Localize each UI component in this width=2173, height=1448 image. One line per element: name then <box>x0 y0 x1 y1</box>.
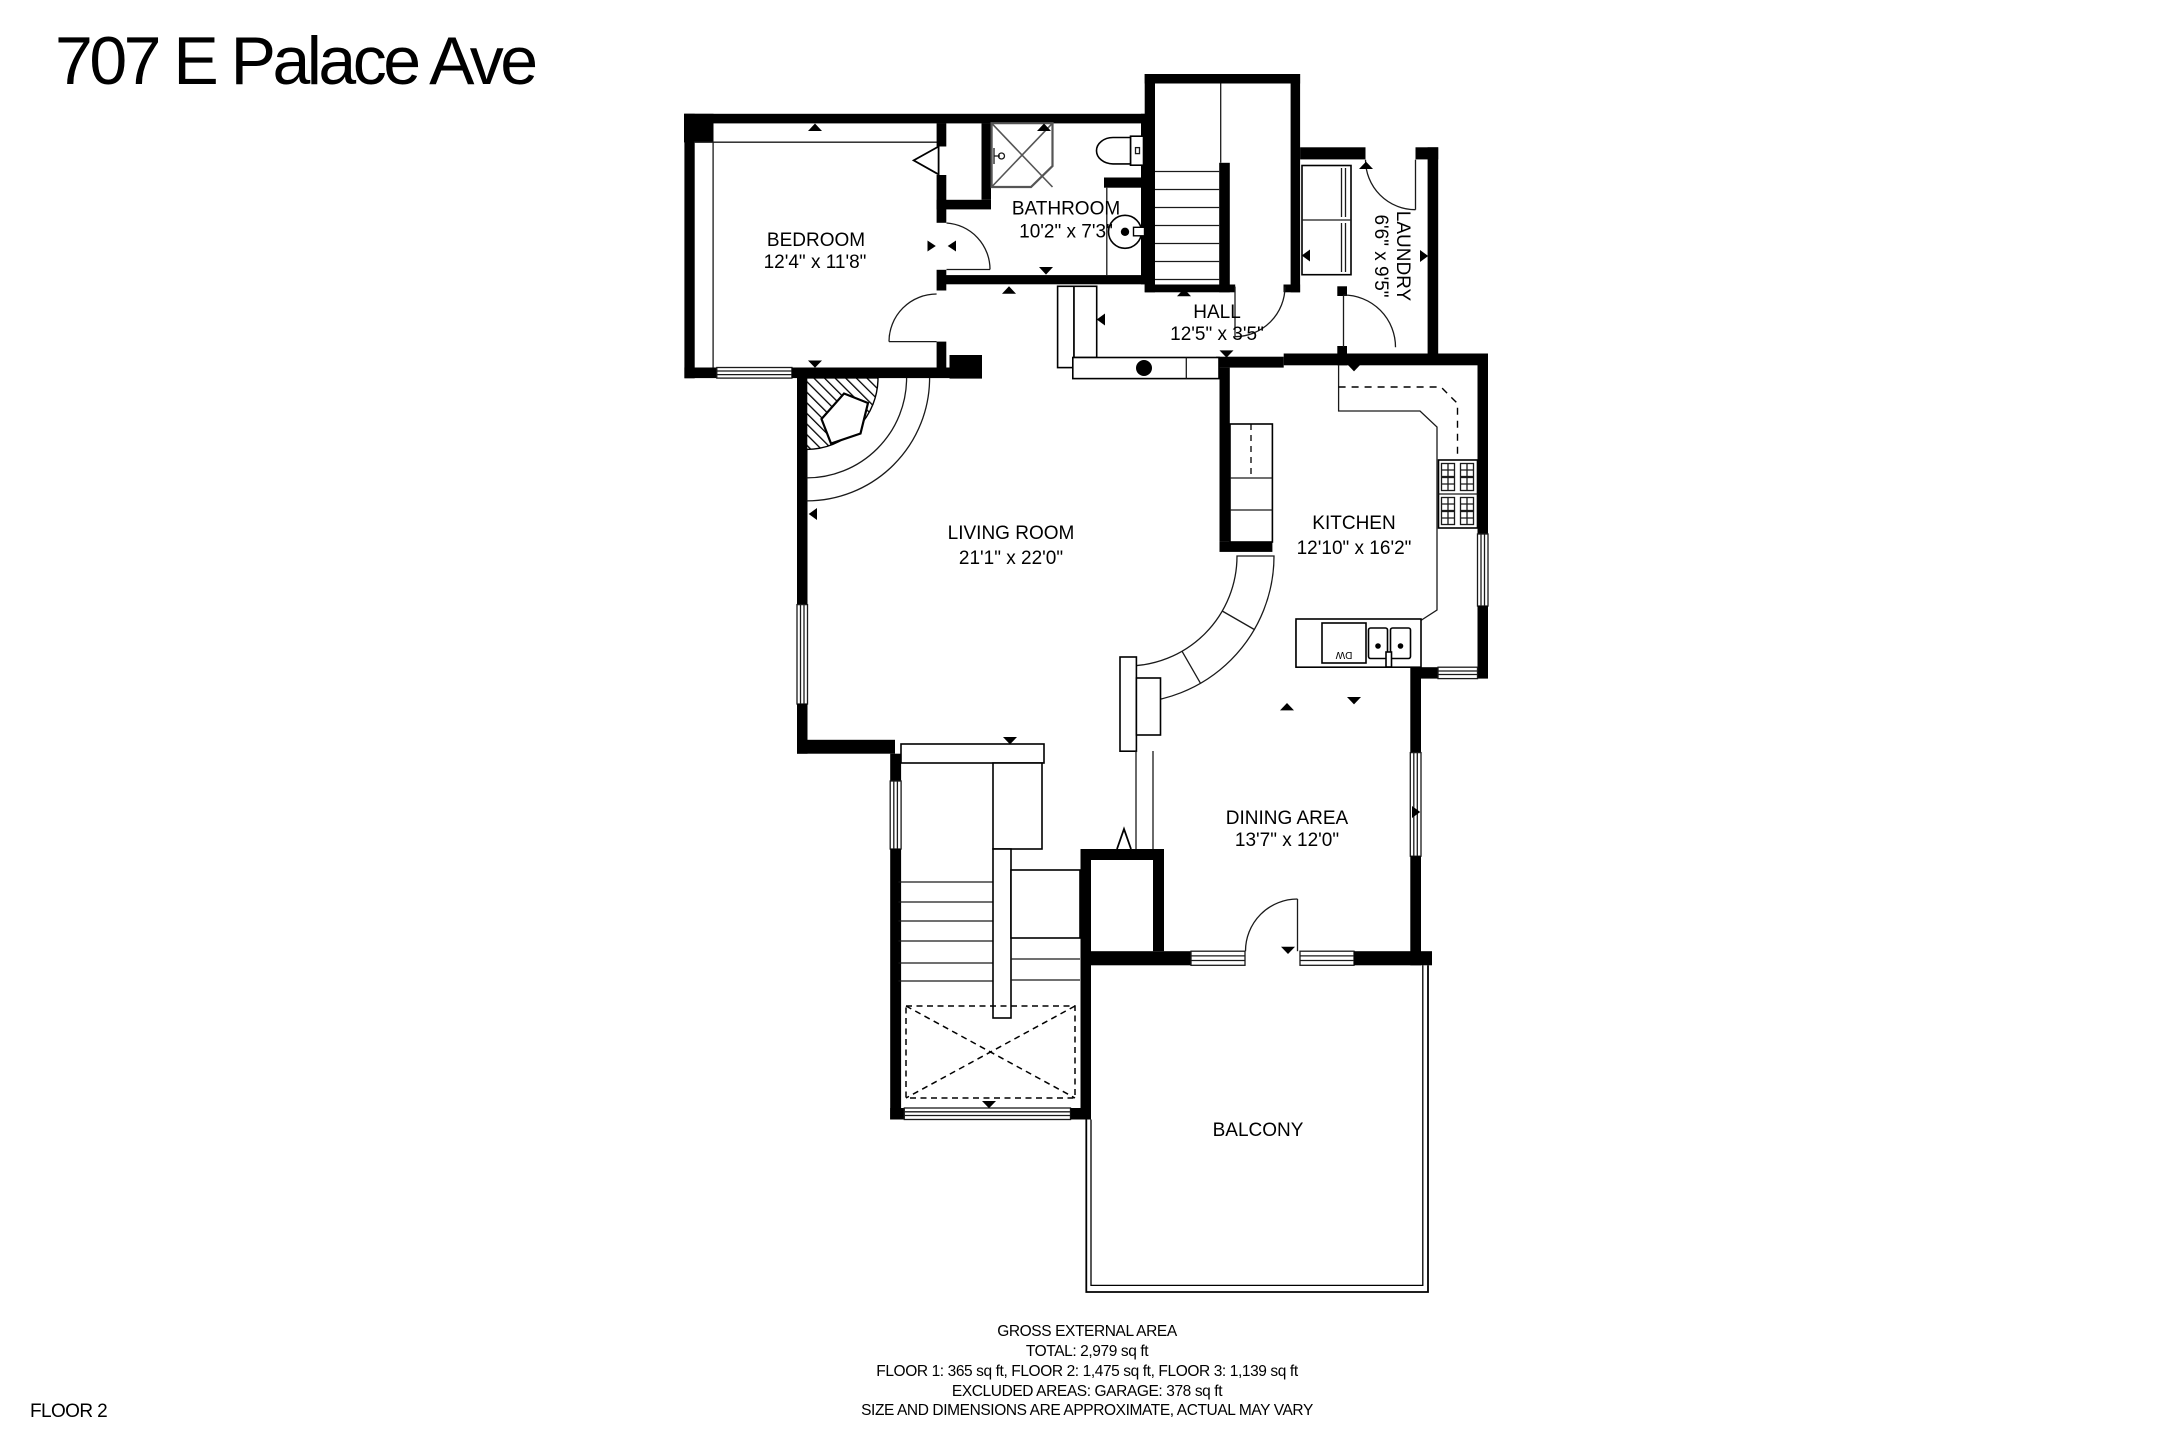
svg-text:10'2" x 7'3": 10'2" x 7'3" <box>1019 222 1113 243</box>
svg-text:FLOOR 1: 365 sq ft, FLOOR 2: 1: FLOOR 1: 365 sq ft, FLOOR 2: 1,475 sq ft… <box>876 1363 1299 1380</box>
svg-text:KITCHEN: KITCHEN <box>1312 513 1395 534</box>
svg-text:13'7" x 12'0": 13'7" x 12'0" <box>1235 830 1339 851</box>
svg-text:BALCONY: BALCONY <box>1213 1120 1304 1141</box>
svg-text:LIVING ROOM: LIVING ROOM <box>948 523 1075 544</box>
svg-text:DW: DW <box>1335 649 1352 660</box>
svg-text:SIZE AND DIMENSIONS ARE APPROX: SIZE AND DIMENSIONS ARE APPROXIMATE, ACT… <box>861 1402 1313 1419</box>
svg-text:TOTAL: 2,979 sq ft: TOTAL: 2,979 sq ft <box>1026 1343 1149 1360</box>
svg-text:21'1" x 22'0": 21'1" x 22'0" <box>959 548 1063 569</box>
svg-text:DINING AREA: DINING AREA <box>1226 808 1349 829</box>
svg-text:707 E Palace Ave: 707 E Palace Ave <box>55 23 535 99</box>
svg-text:GROSS EXTERNAL AREA: GROSS EXTERNAL AREA <box>997 1323 1178 1340</box>
svg-text:BATHROOM: BATHROOM <box>1012 199 1120 220</box>
svg-text:EXCLUDED AREAS: GARAGE: 378 sq: EXCLUDED AREAS: GARAGE: 378 sq ft <box>952 1383 1223 1400</box>
svg-text:FLOOR 2: FLOOR 2 <box>30 1401 107 1422</box>
svg-text:12'4" x 11'8": 12'4" x 11'8" <box>764 252 867 273</box>
svg-text:12'5" x 3'5": 12'5" x 3'5" <box>1170 324 1264 345</box>
svg-text:HALL: HALL <box>1193 302 1241 323</box>
svg-text:LAUNDRY: LAUNDRY <box>1392 211 1413 302</box>
svg-text:6'6" x 9'5": 6'6" x 9'5" <box>1370 214 1391 297</box>
svg-text:BEDROOM: BEDROOM <box>767 230 865 251</box>
svg-text:12'10" x 16'2": 12'10" x 16'2" <box>1297 538 1412 559</box>
